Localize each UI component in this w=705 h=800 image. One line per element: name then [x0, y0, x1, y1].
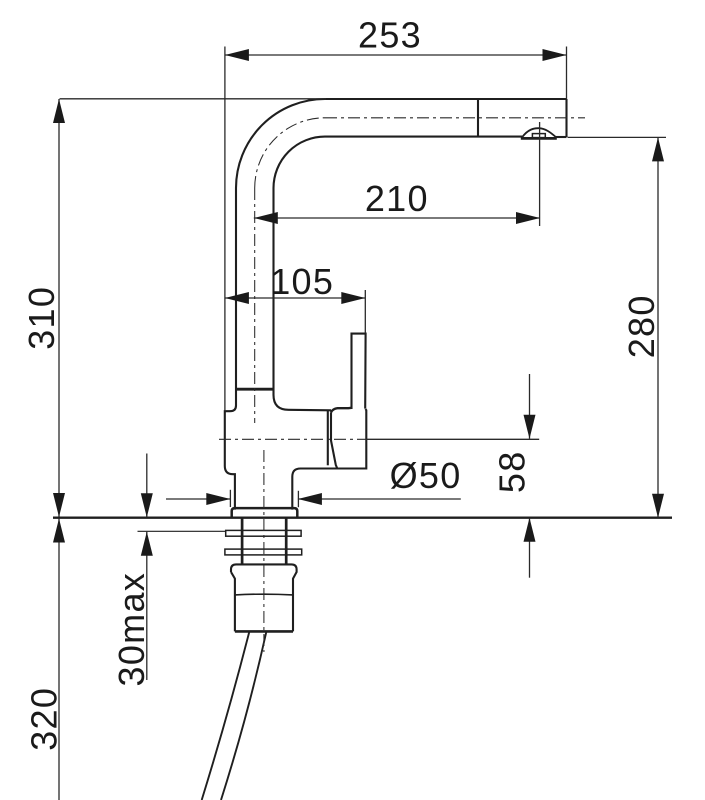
- svg-text:210: 210: [365, 178, 429, 219]
- svg-text:320: 320: [24, 687, 65, 751]
- svg-text:280: 280: [621, 294, 662, 358]
- svg-text:30max: 30max: [111, 572, 152, 687]
- svg-text:310: 310: [21, 286, 62, 350]
- svg-text:58: 58: [492, 450, 533, 493]
- svg-text:105: 105: [270, 261, 334, 302]
- svg-text:253: 253: [358, 15, 422, 56]
- svg-text:Ø50: Ø50: [390, 455, 462, 496]
